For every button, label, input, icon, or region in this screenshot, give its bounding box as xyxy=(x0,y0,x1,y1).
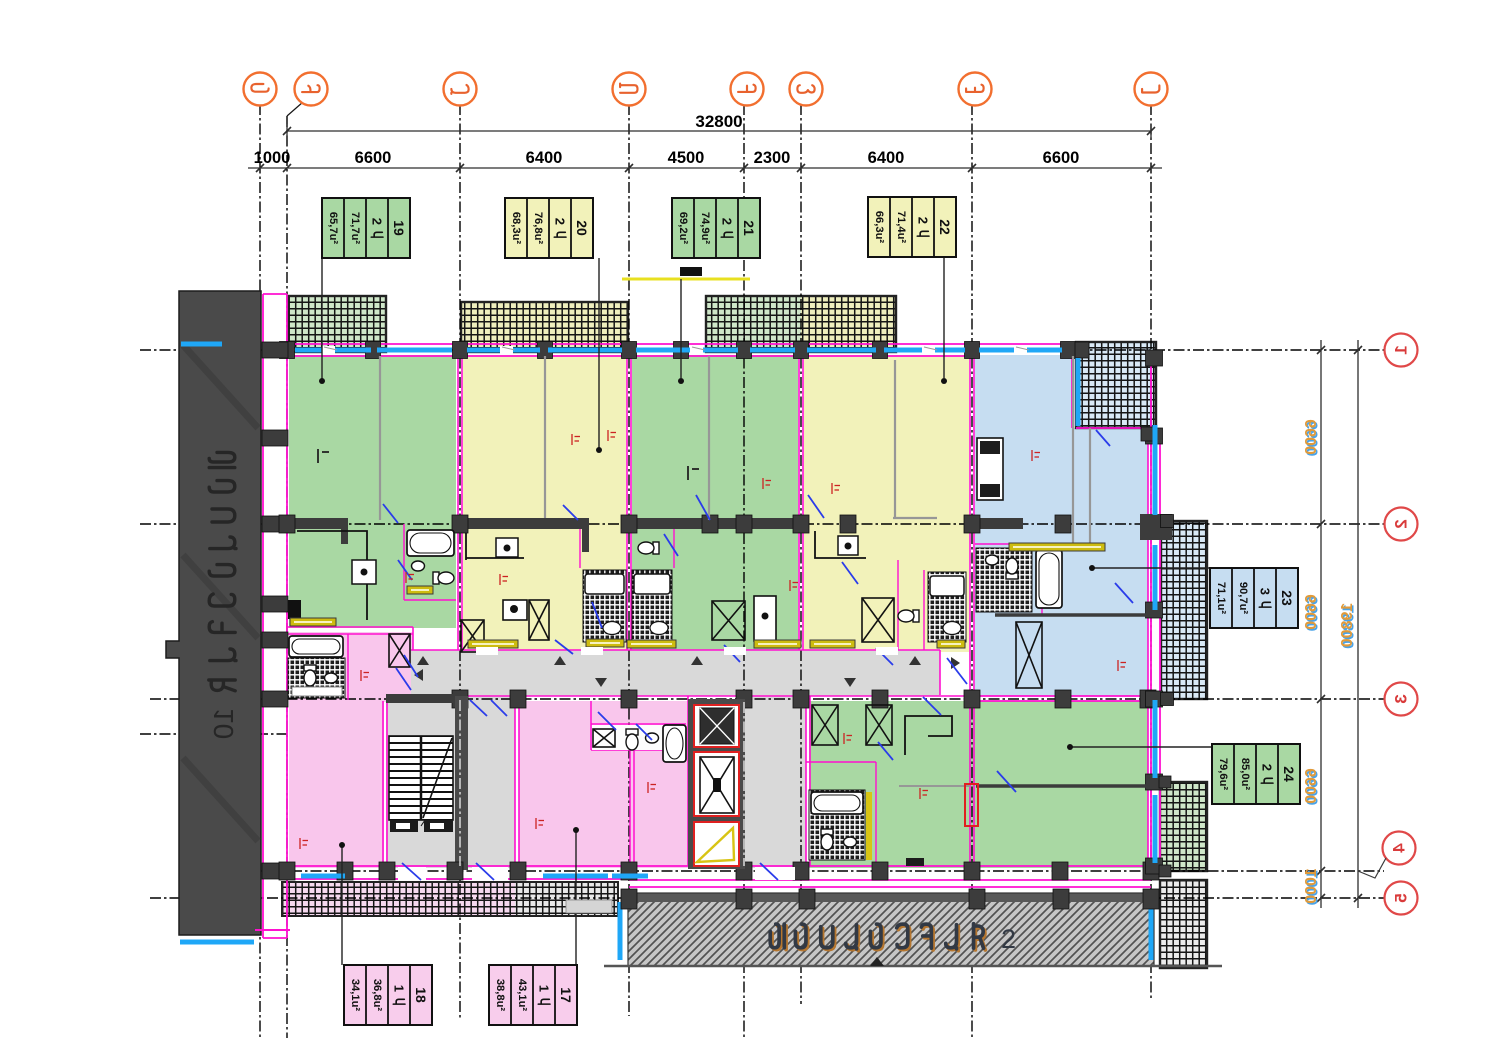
svg-text:22: 22 xyxy=(937,219,953,235)
svg-text:2300: 2300 xyxy=(754,149,791,167)
svg-text:34,1u²: 34,1u² xyxy=(349,979,361,1012)
svg-text:36,8u²: 36,8u² xyxy=(371,979,383,1012)
svg-text:19800: 19800 xyxy=(1339,603,1356,648)
svg-text:6400: 6400 xyxy=(526,149,563,167)
svg-text:76,8u²: 76,8u² xyxy=(532,212,544,245)
svg-text:17: 17 xyxy=(558,987,574,1003)
svg-text:21: 21 xyxy=(741,220,757,236)
svg-text:38,8u²: 38,8u² xyxy=(494,979,506,1012)
svg-text:79,6u²: 79,6u² xyxy=(1217,758,1229,791)
svg-text:3: 3 xyxy=(1258,588,1273,595)
svg-text:4: 4 xyxy=(1390,843,1409,853)
svg-text:74,9u²: 74,9u² xyxy=(699,212,711,245)
svg-text:2: 2 xyxy=(553,218,568,225)
svg-text:23: 23 xyxy=(1279,590,1295,606)
svg-text:1000: 1000 xyxy=(1303,868,1320,904)
svg-text:66,3u²: 66,3u² xyxy=(873,211,885,244)
svg-text:6600: 6600 xyxy=(1303,419,1320,455)
svg-text:24: 24 xyxy=(1281,766,1297,782)
svg-text:65,7u²: 65,7u² xyxy=(327,212,339,245)
svg-text:69,2u²: 69,2u² xyxy=(677,212,689,245)
svg-text:2: 2 xyxy=(1260,764,1275,771)
svg-text:3: 3 xyxy=(1392,694,1411,703)
svg-text:1000: 1000 xyxy=(254,149,291,167)
svg-text:71,4u²: 71,4u² xyxy=(895,211,907,244)
svg-text:20: 20 xyxy=(574,220,590,236)
svg-text:18: 18 xyxy=(413,987,429,1003)
svg-text:1: 1 xyxy=(1392,345,1411,354)
svg-text:6400: 6400 xyxy=(868,149,905,167)
svg-text:19: 19 xyxy=(391,220,407,236)
svg-text:2: 2 xyxy=(916,217,931,224)
svg-text:4500: 4500 xyxy=(668,149,705,167)
svg-text:1: 1 xyxy=(537,985,552,992)
svg-text:43,1u²: 43,1u² xyxy=(516,979,528,1012)
svg-text:32800: 32800 xyxy=(695,112,742,131)
svg-text:6600: 6600 xyxy=(1303,768,1320,804)
svg-text:71,7u²: 71,7u² xyxy=(349,212,361,245)
svg-text:1: 1 xyxy=(392,985,407,992)
svg-text:5: 5 xyxy=(1392,893,1411,902)
svg-text:6600: 6600 xyxy=(1043,149,1080,167)
svg-text:6600: 6600 xyxy=(1303,594,1320,630)
svg-text:2: 2 xyxy=(1001,924,1016,954)
svg-text:71,1u²: 71,1u² xyxy=(1215,582,1227,615)
svg-text:2: 2 xyxy=(370,218,385,225)
svg-text:68,3u²: 68,3u² xyxy=(510,212,522,245)
svg-text:2: 2 xyxy=(720,218,735,225)
svg-text:2: 2 xyxy=(1392,519,1411,528)
svg-text:90,7u²: 90,7u² xyxy=(1237,582,1249,615)
svg-text:10: 10 xyxy=(208,708,239,739)
svg-text:85,0u²: 85,0u² xyxy=(1239,758,1251,791)
svg-text:6600: 6600 xyxy=(355,149,392,167)
